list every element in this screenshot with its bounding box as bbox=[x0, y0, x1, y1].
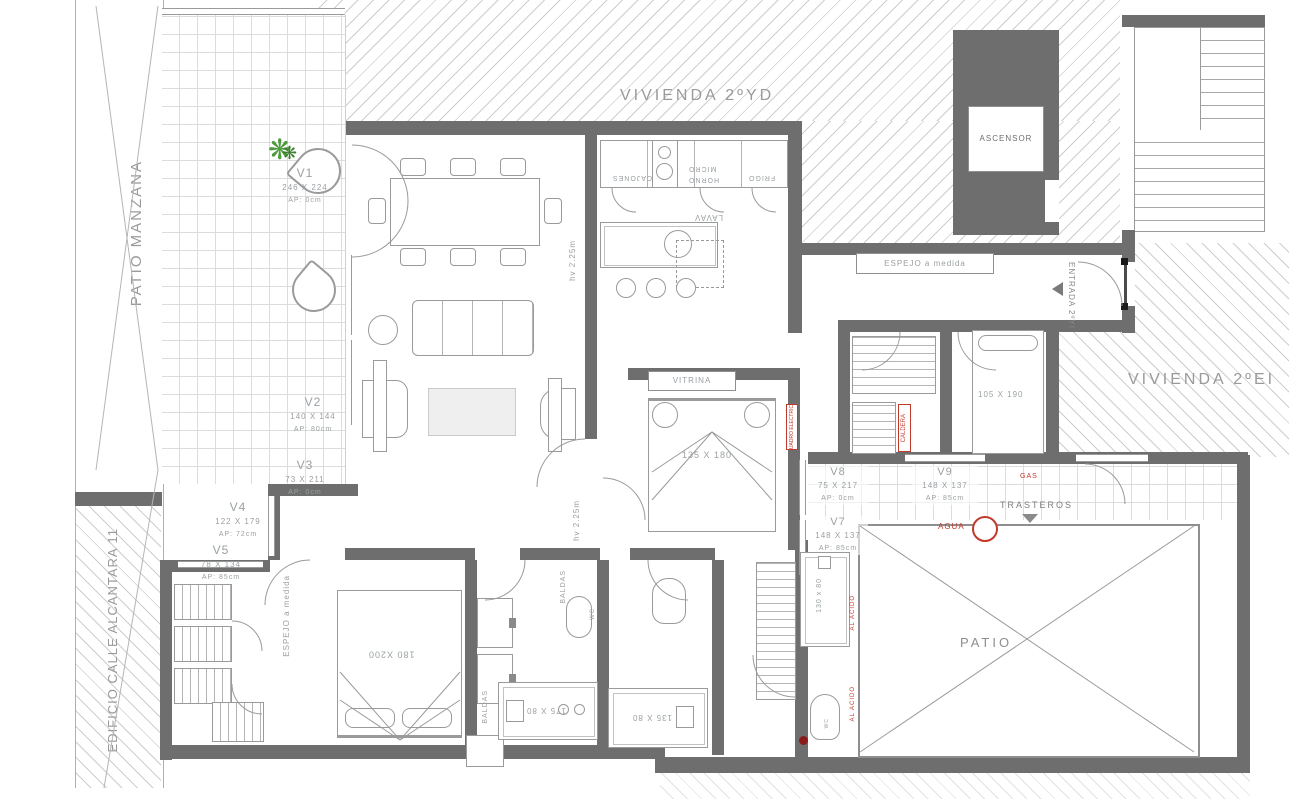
window-label-v7: V7 148 X 137 AP: 85cm bbox=[808, 516, 868, 555]
vivienda-ei-hatch bbox=[1135, 243, 1289, 331]
dining-chair bbox=[450, 158, 476, 176]
window-label-v5: V5 78 X 134 AP: 85cm bbox=[188, 543, 254, 584]
wall-bath2-right bbox=[712, 560, 724, 755]
bed-master-label: 180 X200 bbox=[368, 648, 415, 659]
pillow bbox=[978, 335, 1038, 351]
entrada-arrow-icon bbox=[1052, 282, 1063, 296]
horno-label: HORNO bbox=[688, 174, 719, 183]
stool bbox=[616, 278, 636, 298]
wardrobe bbox=[174, 626, 232, 662]
rug bbox=[428, 388, 516, 436]
shower-head bbox=[818, 556, 831, 569]
hv-label-2: hv 2.25m bbox=[572, 500, 582, 541]
edificio-calle-label: EDIFICIO CALLE ALCANTARA 11 bbox=[105, 528, 121, 752]
stair-left-wall bbox=[1122, 230, 1135, 244]
espejo-hall-box: ESPEJO a medida bbox=[856, 253, 994, 274]
window-label-v3: V3 73 X 211 AP: 0cm bbox=[272, 458, 338, 499]
al-acido-label-2: AL ACIDO bbox=[850, 686, 858, 721]
gas-label: GAS bbox=[1020, 473, 1038, 482]
window-v2 bbox=[345, 255, 352, 335]
agua-label: AGUA bbox=[938, 522, 965, 532]
cooktop-burner bbox=[658, 146, 671, 159]
wall-suite-top-2 bbox=[345, 548, 475, 560]
frigo-label: FRIGO bbox=[748, 172, 775, 181]
window-label-v8: V8 75 X 217 AP: 0cm bbox=[808, 466, 868, 505]
bed-right-label: 105 X 190 bbox=[978, 390, 1023, 400]
wall-laundry-right bbox=[940, 332, 952, 463]
window-label-v9: V9 148 X 137 AP: 85cm bbox=[912, 466, 978, 505]
wall-suite-bottom bbox=[160, 745, 665, 759]
shower-head bbox=[676, 706, 694, 728]
baldas-label-2: BALDAS bbox=[560, 570, 569, 604]
wall-laundry-left bbox=[838, 332, 850, 452]
faucet-icon bbox=[509, 618, 516, 628]
cuadro-electrico-box: CUADRO ELECTRICO bbox=[786, 404, 798, 450]
floor-plan: PATIO MANZANA EDIFICIO CALLE ALCANTARA 1… bbox=[0, 0, 1289, 799]
media-unit bbox=[373, 360, 387, 452]
agua-valve-icon bbox=[972, 516, 998, 542]
cajones-label: CAJONES bbox=[612, 172, 652, 181]
pillow bbox=[652, 402, 678, 428]
wc bbox=[652, 578, 686, 624]
dining-chair bbox=[450, 248, 476, 266]
v8-dim: 75 X 217 bbox=[818, 481, 858, 490]
wc bbox=[566, 596, 592, 638]
cuadro-electrico-label: CUADRO ELECTRICO bbox=[789, 404, 795, 450]
stair-top-wall bbox=[1122, 15, 1265, 27]
laundry-shelves bbox=[852, 336, 936, 394]
cooktop-burner bbox=[656, 163, 673, 180]
side-table bbox=[368, 315, 398, 345]
al-acido-label-1: AL ACIDO bbox=[850, 595, 858, 630]
tv-unit bbox=[548, 378, 562, 452]
v9-ap: AP: 85cm bbox=[926, 495, 964, 502]
wardrobe bbox=[212, 702, 264, 742]
patio-skylight bbox=[858, 524, 1200, 758]
v1-ap: AP: 0cm bbox=[288, 197, 321, 204]
sofa bbox=[412, 300, 534, 356]
v9-id: V9 bbox=[937, 466, 952, 478]
v4-id: V4 bbox=[230, 500, 247, 514]
patio-manzana-label: PATIO MANZANA bbox=[128, 160, 147, 306]
v1-dim: 246 X 224 bbox=[282, 183, 327, 192]
stool bbox=[676, 278, 696, 298]
window-label-v1: V1 246 X 224 AP: 0cm bbox=[272, 166, 338, 207]
stool bbox=[646, 278, 666, 298]
shower-head bbox=[506, 700, 524, 722]
pillow bbox=[744, 402, 770, 428]
wall-top bbox=[300, 121, 800, 135]
v5-ap: AP: 85cm bbox=[202, 574, 240, 581]
dining-chair bbox=[368, 198, 386, 224]
shower-bath1-label: 175 X 80 bbox=[526, 705, 566, 715]
window-patio-2 bbox=[1076, 454, 1148, 462]
window-label-v2: V2 140 X 144 AP: 80cm bbox=[280, 395, 346, 436]
espejo-hall-label: ESPEJO a medida bbox=[884, 259, 966, 269]
lavav-label: LAVAV bbox=[694, 212, 723, 222]
pillow bbox=[402, 708, 452, 728]
wall-suite-left bbox=[160, 560, 172, 760]
v5-id: V5 bbox=[213, 543, 230, 557]
trasteros-arrow-icon bbox=[1022, 514, 1038, 523]
elevator-notch bbox=[1045, 180, 1059, 222]
baldas-label-1: BALDAS bbox=[482, 690, 491, 724]
v7-dim: 148 X 137 bbox=[815, 531, 860, 540]
window-v1 bbox=[162, 8, 345, 15]
shower-inner bbox=[805, 557, 847, 644]
vitrina-box: VITRINA bbox=[648, 371, 736, 391]
v3-dim: 73 X 211 bbox=[285, 475, 324, 484]
dining-chair bbox=[400, 248, 426, 266]
entrada-label: ENTRADA 2ºYI bbox=[1066, 262, 1076, 329]
vivienda-ei-label: VIVIENDA 2ºEI bbox=[1128, 370, 1275, 390]
trasteros-label: TRASTEROS bbox=[1000, 500, 1073, 511]
v8-ap: AP: 0cm bbox=[821, 495, 854, 502]
patio-label: PATIO bbox=[960, 635, 1012, 651]
wardrobe bbox=[174, 668, 232, 704]
bottom-hatch bbox=[660, 773, 1250, 799]
dining-chair bbox=[544, 198, 562, 224]
dining-table bbox=[390, 178, 540, 246]
caldera-box: CALDERA bbox=[898, 404, 911, 452]
wall-kitchen-right bbox=[788, 121, 802, 333]
espejo-master-label: ESPEJO a medida bbox=[282, 575, 292, 657]
wall-suite-top-4 bbox=[630, 548, 715, 560]
stair-treads-lower bbox=[1135, 130, 1264, 231]
v4-dim: 122 X 179 bbox=[215, 517, 260, 526]
corridor-closet bbox=[756, 562, 796, 700]
wall-patio-right bbox=[1237, 455, 1250, 773]
elevator-cab: ASCENSOR bbox=[968, 106, 1044, 172]
v4-ap: AP: 72cm bbox=[219, 531, 257, 538]
ascensor-label: ASCENSOR bbox=[980, 134, 1033, 144]
drain-marker bbox=[799, 736, 808, 745]
stair-treads-upper bbox=[1200, 28, 1265, 130]
wall-living-hall bbox=[585, 134, 597, 439]
dining-chair bbox=[500, 248, 526, 266]
wardrobe bbox=[174, 584, 232, 620]
entrada-door-leaf bbox=[1124, 262, 1127, 306]
window-label-v4: V4 122 X 179 AP: 72cm bbox=[205, 500, 271, 541]
shower-bath2-label: 135 X 80 bbox=[632, 712, 672, 722]
hv-label-1: hv 2.25m bbox=[568, 240, 578, 281]
v2-id: V2 bbox=[305, 395, 322, 409]
door-hinge bbox=[1121, 258, 1128, 265]
vanity-sink bbox=[477, 598, 513, 648]
caldera-label: CALDERA bbox=[901, 414, 909, 442]
wall-bath1-left bbox=[465, 560, 477, 755]
v5-dim: 78 X 134 bbox=[201, 560, 241, 569]
wc-label-1: WC bbox=[590, 608, 598, 620]
vitrina-label: VITRINA bbox=[673, 376, 712, 386]
window-v8 bbox=[799, 460, 806, 515]
laundry-stack bbox=[852, 402, 896, 454]
v3-id: V3 bbox=[297, 458, 314, 472]
micro-label: MICRO bbox=[688, 163, 716, 172]
v2-dim: 140 X 144 bbox=[290, 412, 335, 421]
vivienda-yd-label: VIVIENDA 2ºYD bbox=[620, 86, 774, 106]
wall-left-strip bbox=[75, 492, 162, 506]
wc bbox=[810, 694, 840, 740]
dining-chair bbox=[400, 158, 426, 176]
bed-center-label: 135 X 180 bbox=[682, 450, 732, 461]
v7-id: V7 bbox=[830, 516, 845, 528]
v2-ap: AP: 80cm bbox=[294, 426, 332, 433]
window-v9 bbox=[905, 454, 985, 462]
door-hinge bbox=[1121, 303, 1128, 310]
pillow bbox=[345, 708, 395, 728]
wc-label-2: WC bbox=[824, 718, 830, 728]
v8-id: V8 bbox=[830, 466, 845, 478]
v9-dim: 148 X 137 bbox=[922, 481, 967, 490]
wall-bedroom-right bbox=[1046, 320, 1059, 463]
window-v3 bbox=[345, 340, 352, 425]
vivienda-ei-hatch-2 bbox=[1059, 331, 1289, 457]
dining-chair bbox=[500, 158, 526, 176]
v1-id: V1 bbox=[297, 166, 314, 180]
v3-ap: AP: 0cm bbox=[288, 489, 321, 496]
shower-knob bbox=[574, 704, 585, 715]
shower-bath3-label: 130 x 80 bbox=[816, 578, 825, 613]
wall-suite-top-3 bbox=[520, 548, 600, 560]
wall-patio-bottom bbox=[655, 757, 1250, 773]
